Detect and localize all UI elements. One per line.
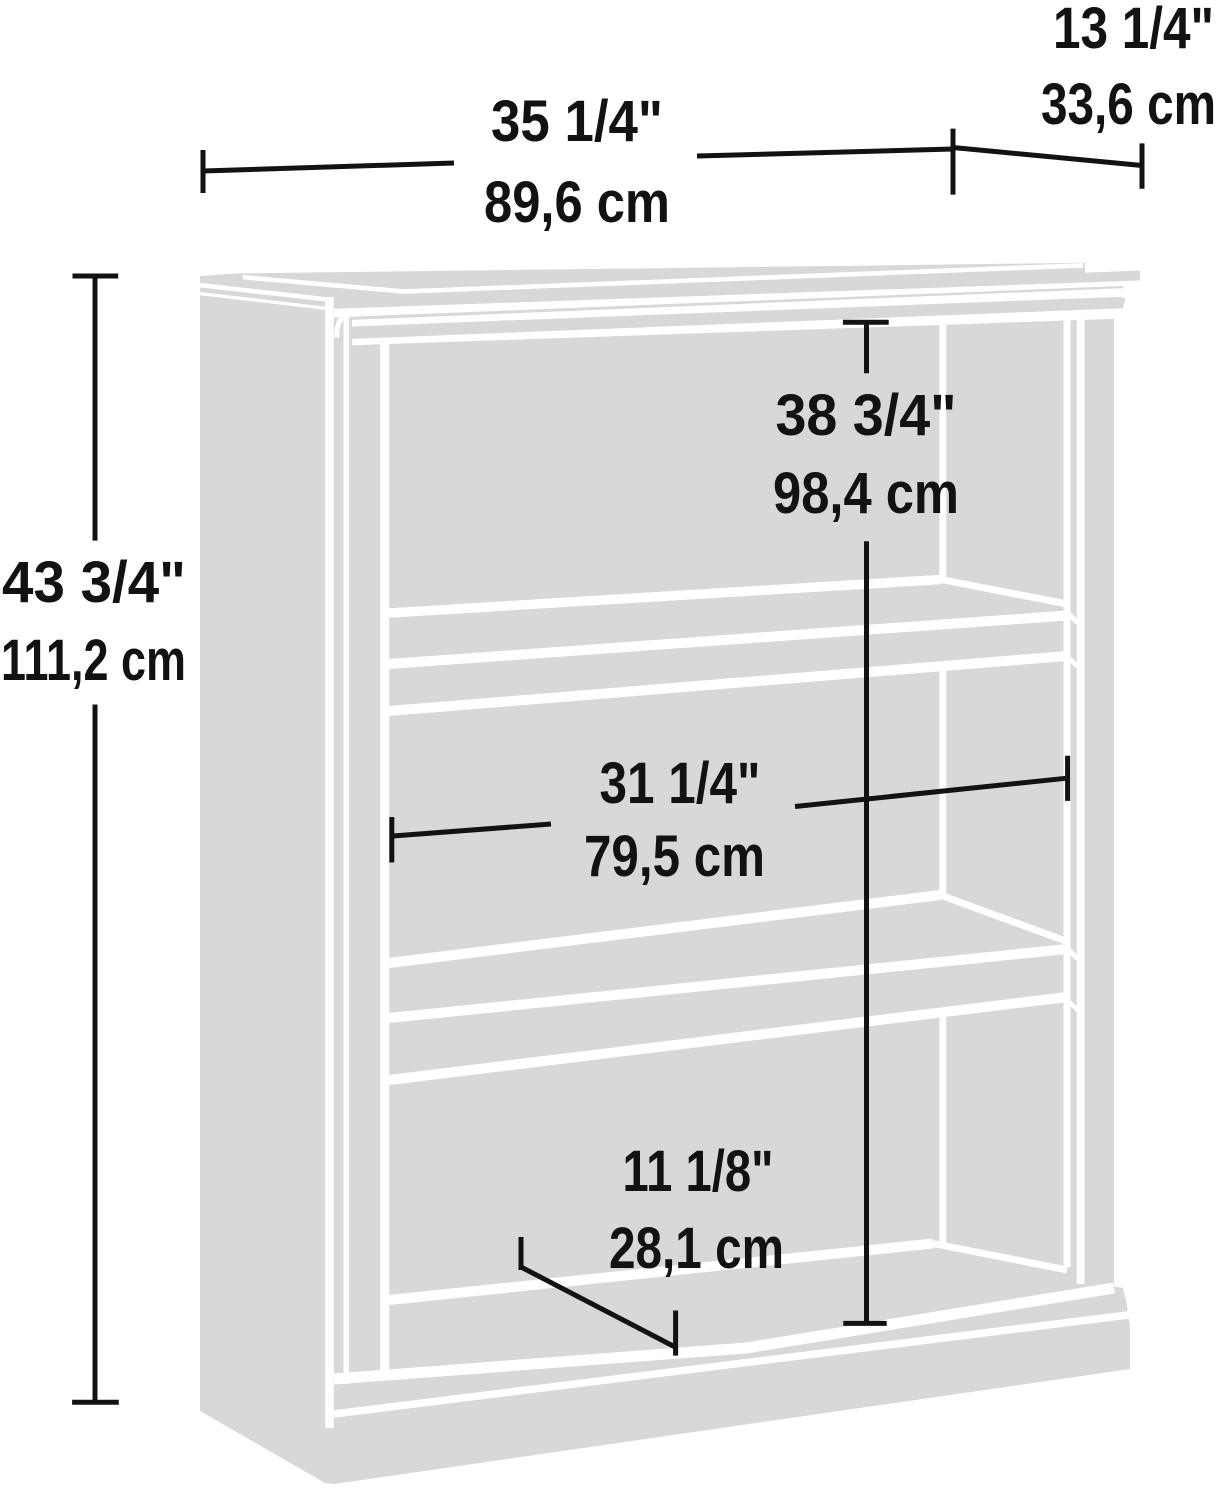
svg-text:35 1/4": 35 1/4" (491, 89, 663, 154)
svg-text:28,1 cm: 28,1 cm (609, 1216, 784, 1281)
svg-text:13 1/4": 13 1/4" (1053, 0, 1214, 61)
svg-text:98,4 cm: 98,4 cm (773, 461, 959, 526)
svg-text:11 1/8": 11 1/8" (623, 1139, 774, 1204)
svg-text:79,5 cm: 79,5 cm (584, 824, 765, 889)
svg-text:43 3/4": 43 3/4" (2, 550, 186, 615)
svg-text:89,6 cm: 89,6 cm (484, 170, 670, 235)
svg-text:31 1/4": 31 1/4" (600, 751, 761, 816)
svg-text:111,2 cm: 111,2 cm (1, 628, 186, 693)
svg-text:33,6 cm: 33,6 cm (1041, 72, 1216, 137)
svg-text:38 3/4": 38 3/4" (776, 383, 957, 448)
